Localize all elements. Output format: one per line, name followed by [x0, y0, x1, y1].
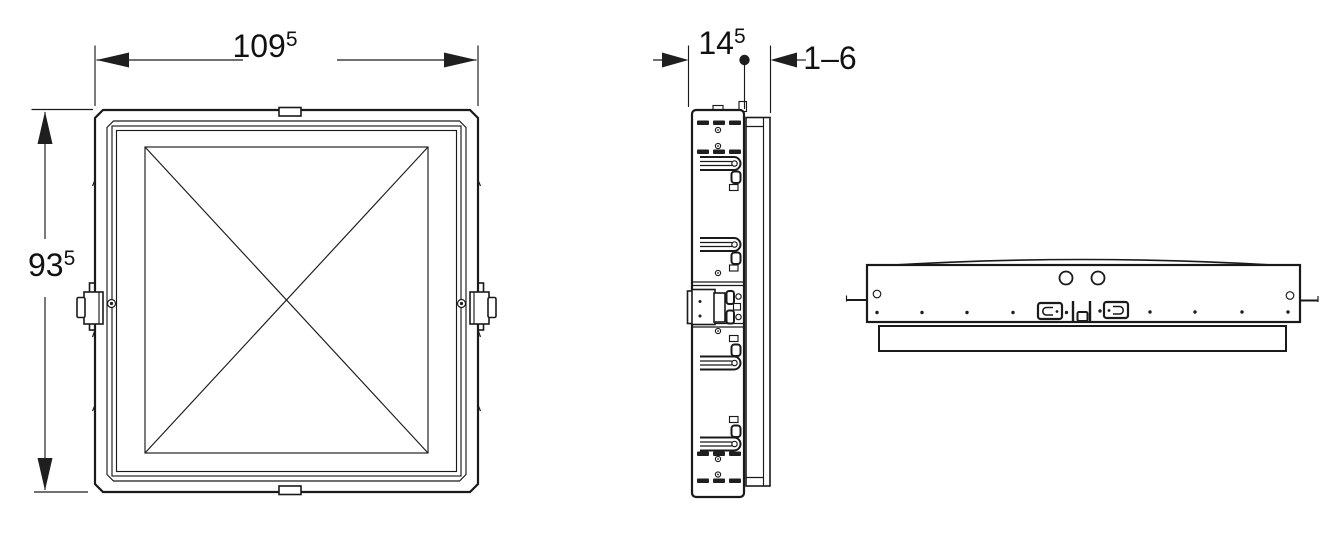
dim-arrow-left — [771, 53, 798, 68]
right-latch-body — [470, 292, 489, 324]
left-latch-knob — [77, 298, 85, 318]
dim-label-wall-offset: 1–6 — [803, 40, 856, 76]
dim-arrow-down — [38, 458, 53, 491]
dim-wall-offset: 1–6 — [771, 40, 857, 113]
drawing-svg: 1095 935 — [0, 0, 1321, 555]
top-tab — [279, 108, 301, 117]
end-hole — [873, 290, 881, 298]
dim-side-depth: 145 — [653, 25, 750, 109]
bottom-tab — [279, 486, 301, 495]
bottom-body — [867, 265, 1300, 322]
right-latch-knob — [488, 298, 496, 318]
technical-drawing-canvas: 1095 935 — [0, 0, 1321, 555]
front-view — [77, 108, 496, 495]
dim-label-front-width: 1095 — [232, 28, 297, 64]
side-view — [688, 102, 771, 498]
dim-label-front-height: 935 — [28, 247, 75, 283]
left-latch-body — [84, 292, 103, 324]
dim-arrow-up — [38, 112, 53, 145]
dim-label-side-depth: 145 — [698, 25, 745, 61]
end-hole — [1286, 292, 1294, 300]
bottom-skirt — [879, 326, 1286, 351]
dim-arrow-right — [662, 53, 689, 68]
dim-front-width: 1095 — [95, 28, 478, 106]
bottom-view — [847, 260, 1319, 352]
front-frame-outer — [95, 110, 478, 492]
dim-arrow-left — [97, 53, 130, 68]
side-flange — [746, 118, 770, 487]
dim-arrow-right — [444, 53, 477, 68]
